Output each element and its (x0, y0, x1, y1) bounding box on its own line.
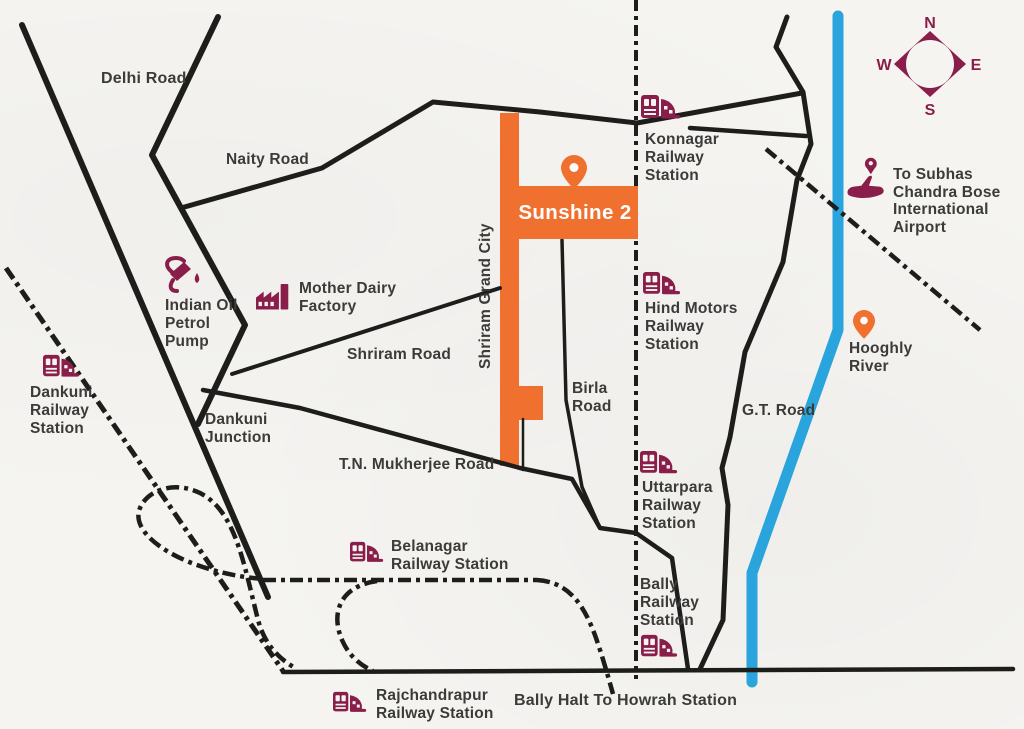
road-label-shriram: Shriram Road (347, 346, 451, 364)
road-label-delhi: Delhi Road (101, 70, 187, 88)
train-icon (350, 541, 384, 565)
compass-s: S (925, 102, 936, 119)
location-map: N E S W Sunshine 2 Delhi Road Naity Road… (0, 0, 1024, 729)
label-bally-halt-howrah: Bally Halt To Howrah Station (514, 692, 737, 710)
road-label-birla: Birla Road (572, 380, 612, 416)
landmark-label-hooghly: Hooghly River (849, 340, 912, 376)
road-label-tn-mukherjee: T.N. Mukherjee Road (339, 456, 494, 474)
compass-n: N (924, 15, 936, 32)
road-label-gt: G.T. Road (742, 402, 815, 420)
station-label-hind-motors: Hind Motors Railway Station (645, 300, 738, 354)
compass-e: E (971, 57, 982, 74)
train-icon (643, 271, 681, 298)
label-dankuni-junction: Dankuni Junction (205, 411, 271, 447)
road-label-shriram-grand-city: Shriram Grand City (477, 223, 495, 369)
landmark-label-airport: To Subhas Chandra Bose International Air… (893, 166, 1000, 236)
station-label-bally: Bally Railway Station (640, 576, 699, 630)
hooghly-river-line (752, 16, 838, 682)
sunshine2-plot: Sunshine 2 (512, 186, 638, 239)
station-label-dankuni: Dankuni Railway Station (30, 384, 93, 438)
road-label-naity: Naity Road (226, 151, 309, 169)
landmark-label-mother-dairy: Mother Dairy Factory (299, 280, 396, 316)
station-label-rajchandrapur: Rajchandrapur Railway Station (376, 687, 494, 723)
road-bottom-horizontal (283, 669, 1013, 672)
train-icon (43, 354, 80, 380)
railway-loop-right (537, 580, 613, 694)
fuel-pump-icon (160, 256, 204, 298)
map-pin-icon (853, 310, 875, 339)
railway-loop-left (337, 581, 377, 671)
airplane-pin-icon (845, 157, 889, 203)
plot-strip-tab (517, 386, 543, 420)
station-label-uttarpara: Uttarpara Railway Station (642, 479, 713, 533)
train-icon (640, 450, 678, 477)
sunshine2-label: Sunshine 2 (518, 201, 631, 225)
plot-strip-bar (500, 113, 519, 466)
compass-w: W (876, 57, 892, 74)
train-icon (641, 94, 681, 122)
compass-rose-icon: N E S W (876, 15, 981, 119)
train-icon (641, 634, 678, 660)
road-tn-mukherjee (203, 390, 688, 669)
station-label-konnagar: Konnagar Railway Station (645, 131, 719, 185)
factory-icon (256, 284, 290, 310)
train-icon (333, 691, 367, 715)
station-label-belanagar: Belanagar Railway Station (391, 538, 509, 574)
sunshine2-map-pin-icon (561, 155, 587, 189)
landmark-label-indian-oil: Indian Oil Petrol Pump (165, 297, 238, 351)
